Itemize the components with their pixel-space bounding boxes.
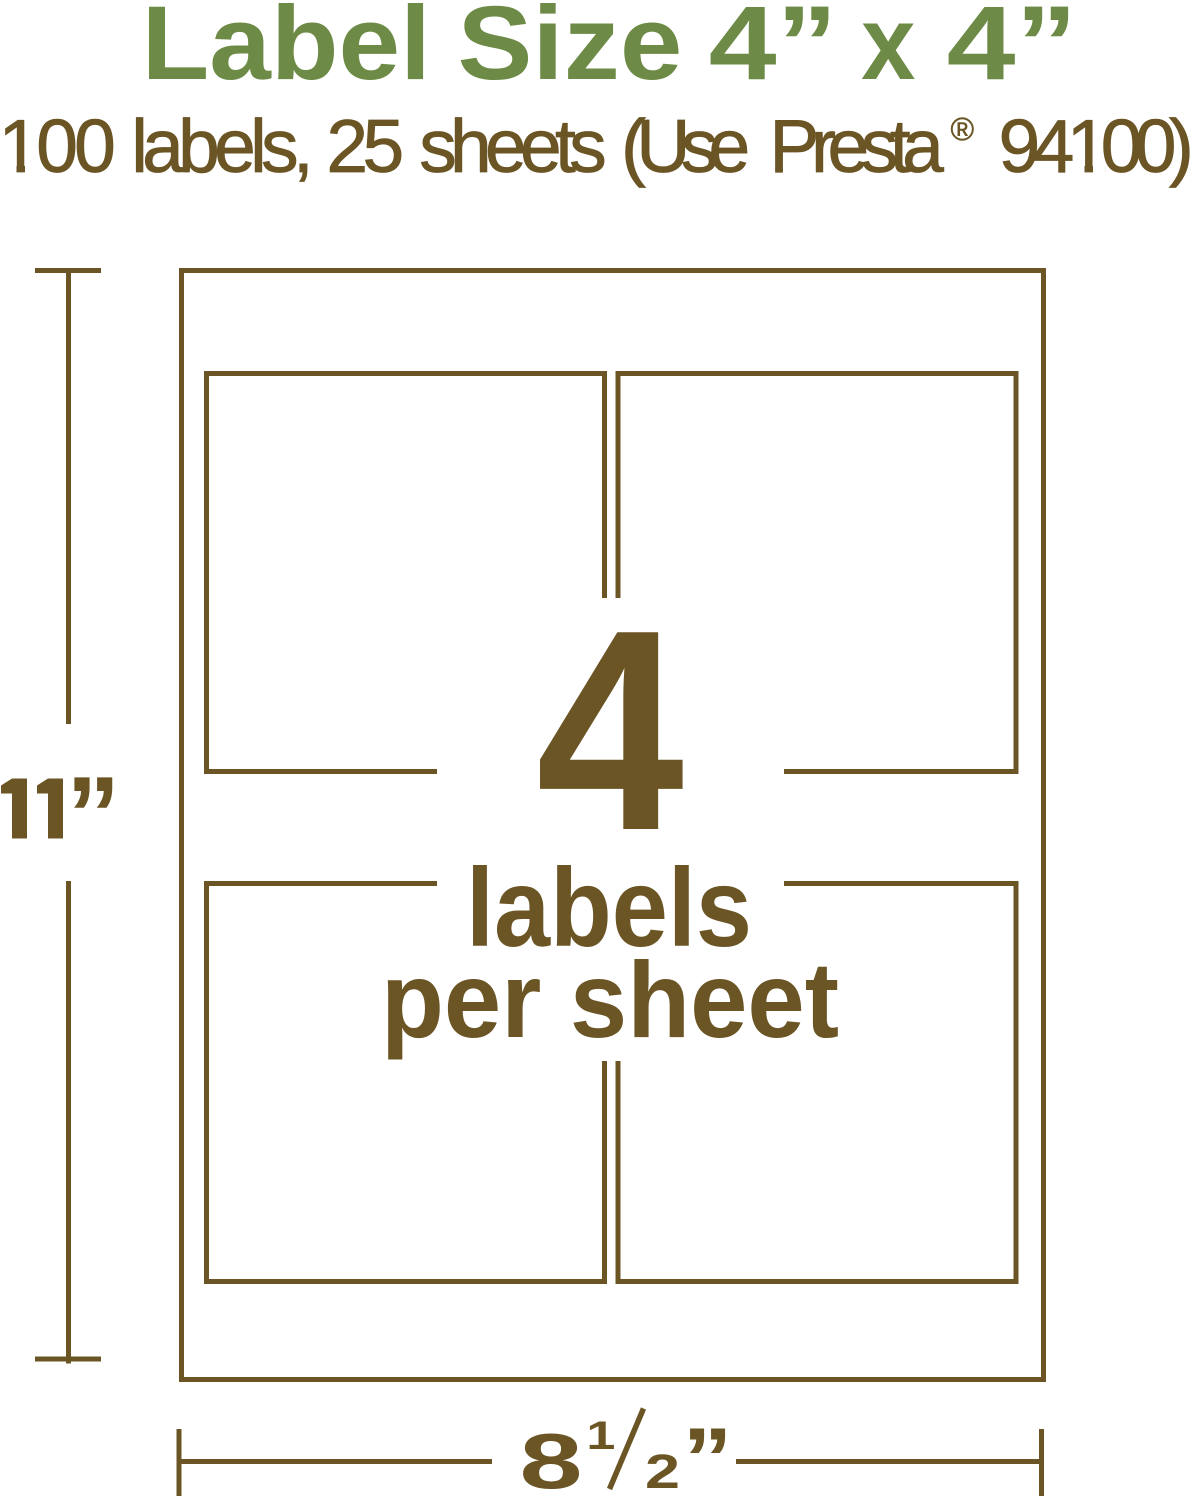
svg-text:Label: Label (142, 0, 431, 102)
svg-text:Size: Size (458, 0, 683, 102)
svg-text:4: 4 (536, 570, 686, 890)
svg-text:sheets: sheets (419, 104, 607, 188)
svg-text:100: 100 (0, 104, 116, 188)
svg-text:25: 25 (326, 104, 404, 188)
svg-text:x: x (861, 0, 915, 102)
svg-text:94100): 94100) (999, 104, 1194, 188)
svg-text:1: 1 (586, 1414, 615, 1458)
svg-text:2: 2 (645, 1446, 680, 1499)
svg-text:8: 8 (520, 1417, 583, 1500)
svg-text:”: ” (683, 1411, 733, 1500)
svg-text:per sheet: per sheet (381, 939, 839, 1060)
svg-text:Presta: Presta (769, 104, 944, 188)
svg-text:labels,: labels, (131, 104, 314, 188)
svg-text:®: ® (951, 111, 975, 147)
svg-text:”: ” (66, 754, 120, 875)
svg-text:(Use: (Use (621, 104, 750, 188)
svg-text:4”: 4” (709, 0, 838, 102)
svg-text:4”: 4” (947, 0, 1078, 102)
